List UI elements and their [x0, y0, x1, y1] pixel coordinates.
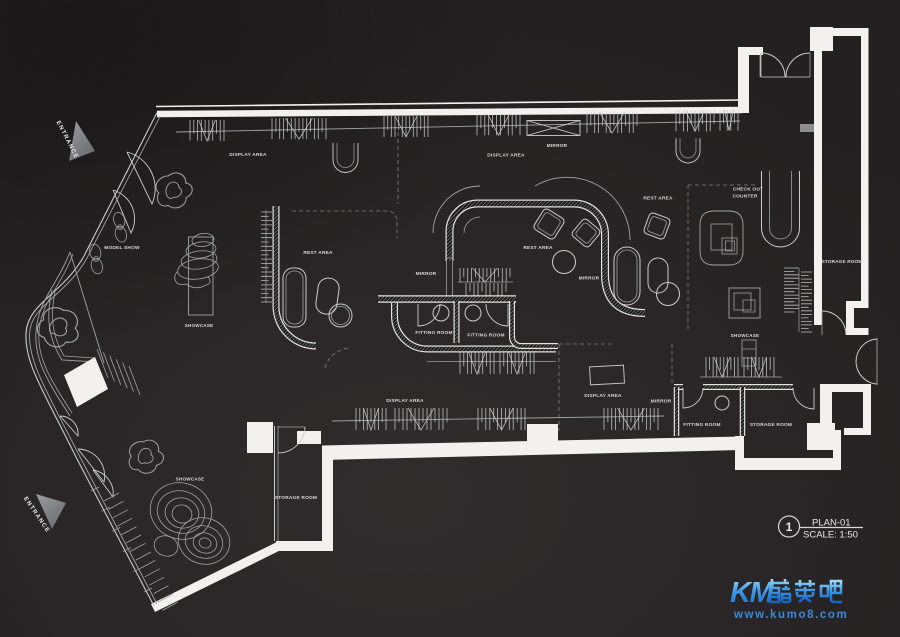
svg-text:DISPLAY AREA: DISPLAY AREA — [487, 153, 525, 159]
svg-text:STORAGE ROOM: STORAGE ROOM — [750, 422, 792, 428]
svg-text:FITTING ROOM: FITTING ROOM — [683, 422, 720, 428]
svg-text:SCALE: 1:50: SCALE: 1:50 — [803, 530, 858, 541]
svg-text:SHOWCASE: SHOWCASE — [185, 323, 214, 328]
svg-text:FITTING ROOM: FITTING ROOM — [467, 333, 504, 339]
svg-text:MIRROR: MIRROR — [416, 271, 437, 277]
svg-text:DISPLAY AREA: DISPLAY AREA — [229, 152, 267, 158]
svg-text:REST AREA: REST AREA — [303, 250, 333, 256]
svg-text:MIRROR: MIRROR — [651, 399, 672, 405]
svg-text:STORAGE ROOM: STORAGE ROOM — [275, 495, 317, 501]
svg-text:SHOWCASE: SHOWCASE — [176, 477, 205, 482]
svg-text:MIRROR: MIRROR — [579, 276, 600, 282]
svg-text:CHECK OUT: CHECK OUT — [733, 187, 763, 193]
svg-text:COUNTER: COUNTER — [732, 194, 757, 200]
svg-text:1: 1 — [786, 520, 793, 534]
svg-text:REST AREA: REST AREA — [523, 245, 553, 251]
svg-text:DISPLAY AREA: DISPLAY AREA — [584, 393, 622, 399]
svg-text:FITTING ROOM: FITTING ROOM — [415, 330, 452, 336]
svg-text:MIRROR: MIRROR — [547, 143, 568, 149]
svg-text:STORAGE ROOM: STORAGE ROOM — [822, 259, 863, 264]
svg-text:PLAN-01: PLAN-01 — [812, 518, 851, 529]
svg-text:MODEL SHOW: MODEL SHOW — [104, 245, 140, 251]
svg-text:REST AREA: REST AREA — [643, 196, 673, 202]
svg-text:SHOWCASE: SHOWCASE — [731, 333, 760, 338]
svg-text:KM: KM — [730, 577, 774, 609]
svg-text:DISPLAY AREA: DISPLAY AREA — [386, 398, 424, 404]
svg-text:www.kumo8.com: www.kumo8.com — [733, 609, 848, 621]
